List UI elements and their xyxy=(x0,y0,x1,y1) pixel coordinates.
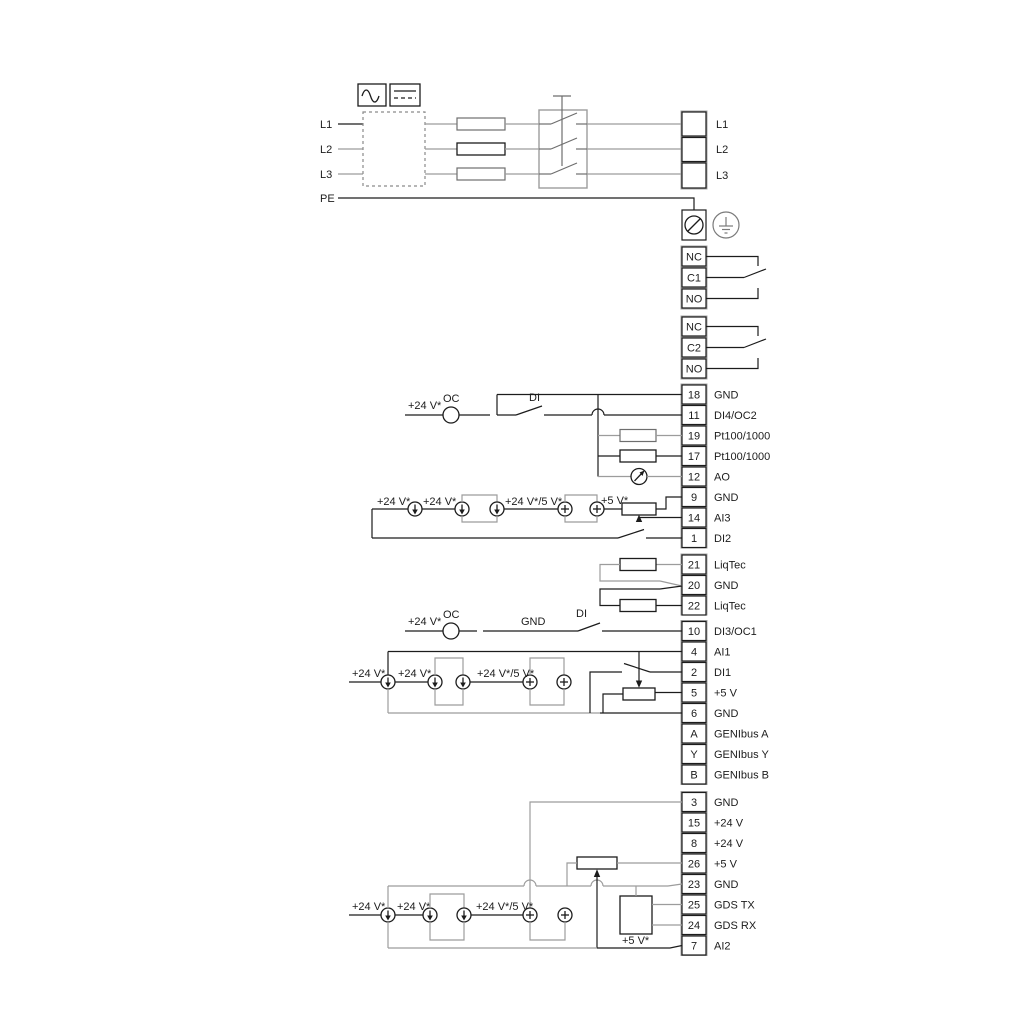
plus24v-5v-label: +24 V*/5 V* xyxy=(505,496,563,508)
wire-bridge xyxy=(430,922,464,940)
wire-bridge xyxy=(430,894,464,908)
wire xyxy=(567,863,577,886)
earth-ground-icon xyxy=(713,212,739,238)
mains-switch xyxy=(539,96,587,188)
pt100-resistor-icon xyxy=(620,430,656,442)
terminal-number: C2 xyxy=(687,343,701,355)
diagram-svg: L1 L2 L3 PE xyxy=(0,0,1024,1024)
terminal-number: A xyxy=(690,729,698,741)
terminal-label: GND xyxy=(714,580,739,592)
wiper-arrow-up xyxy=(594,869,600,877)
current-source-icon xyxy=(428,675,442,689)
terminal-cell-l1 xyxy=(682,112,706,136)
terminal-number: 1 xyxy=(691,533,697,545)
fuse-icon xyxy=(457,168,505,180)
liqtec-resistor-icon xyxy=(620,600,656,612)
terminal-label: GND xyxy=(714,879,739,891)
relay2-section: NC C2 NO xyxy=(681,316,767,380)
oc-label: OC xyxy=(443,609,460,621)
current-source-icon xyxy=(490,502,504,516)
wire-bridge xyxy=(462,516,497,522)
terminal-number: 4 xyxy=(691,647,697,659)
terminal-number: 10 xyxy=(688,626,700,638)
terminal-label: GDS RX xyxy=(714,920,757,932)
fuse-icon xyxy=(457,143,505,155)
mains-filter-box xyxy=(363,112,425,186)
terminal-number: NC xyxy=(686,322,702,334)
liqtec-sensor-wiring xyxy=(600,559,682,612)
wire xyxy=(660,581,682,586)
plus24v-label: +24 V* xyxy=(408,616,442,628)
liqtec-resistor-icon xyxy=(620,559,656,571)
voltage-source-icon xyxy=(558,502,572,516)
ai3-wiring: +24 V* +24 V* +24 V*/5 V* +5 V* xyxy=(372,495,682,538)
terminal-number: 20 xyxy=(688,580,700,592)
terminal-label: GENIbus B xyxy=(714,770,769,782)
current-source-icon xyxy=(381,908,395,922)
plus5v-label: +5 V* xyxy=(601,495,629,507)
relay-switch-blade xyxy=(744,339,766,348)
gnd-label: GND xyxy=(521,616,546,628)
terminal-number: 24 xyxy=(688,920,700,932)
terminal-number: 15 xyxy=(688,818,700,830)
terminal-label: GENIbus Y xyxy=(714,749,769,761)
oc-label: OC xyxy=(443,393,460,405)
terminal-label: DI2 xyxy=(714,533,731,545)
terminal-cell-l2 xyxy=(682,138,706,162)
terminal-number: 22 xyxy=(688,601,700,613)
wire-bridge xyxy=(530,922,565,940)
plus24v-5v-label: +24 V*/5 V* xyxy=(477,668,535,680)
terminal-label: AI1 xyxy=(714,647,731,659)
mains-input-label: L3 xyxy=(320,169,332,181)
plus24v-5v-label: +24 V*/5 V* xyxy=(476,901,534,913)
terminal-number: NO xyxy=(686,364,703,376)
plus24v-label: +24 V* xyxy=(377,496,411,508)
digital-input-switch-icon xyxy=(578,623,600,631)
liqtec-terminals: 21 20 22 LiqTec GND LiqTec xyxy=(600,554,746,616)
wiper-arrow-up xyxy=(636,515,642,522)
terminal-label: DI3/OC1 xyxy=(714,626,757,638)
io-group3-terminals: 3 15 8 26 23 25 24 7 GND +24 V +24 V +5 … xyxy=(681,791,757,956)
terminal-label: L3 xyxy=(716,170,728,182)
relay1-section: NC C1 NO xyxy=(681,246,767,310)
ai1-wiring: +24 V* +24 V* +24 V*/5 V* xyxy=(349,652,682,714)
relay1-contact xyxy=(706,257,766,299)
open-collector-icon xyxy=(443,407,459,423)
terminal-number: 26 xyxy=(688,859,700,871)
relay-nc-wire xyxy=(706,327,758,337)
terminal-cell-l3 xyxy=(682,163,706,188)
relay-no-wire xyxy=(706,288,758,299)
terminal-label: AI2 xyxy=(714,941,731,953)
mains-power-section: L1 L2 L3 PE xyxy=(320,84,739,240)
terminal-label: DI1 xyxy=(714,667,731,679)
plus24v-label: +24 V* xyxy=(352,901,386,913)
terminal-number: Y xyxy=(690,749,698,761)
plus24v-label: +24 V* xyxy=(397,901,431,913)
fuse-icon xyxy=(457,118,505,130)
terminal-label: GND xyxy=(714,390,739,402)
gds-sensor-box xyxy=(620,896,652,934)
wire-bridge xyxy=(435,689,463,705)
relay-no-wire xyxy=(706,358,758,369)
terminal-number: 19 xyxy=(688,431,700,443)
switch-contact xyxy=(551,138,577,149)
terminal-number: 23 xyxy=(688,879,700,891)
terminal-number: 25 xyxy=(688,900,700,912)
voltage-source-icon xyxy=(557,675,571,689)
terminal-label: GND xyxy=(714,708,739,720)
terminal-number: 14 xyxy=(688,513,700,525)
terminal-label: Pt100/1000 xyxy=(714,431,770,443)
relay2-contact xyxy=(706,327,766,369)
terminal-label: GDS TX xyxy=(714,900,755,912)
current-source-icon xyxy=(455,502,469,516)
terminal-number: NO xyxy=(686,294,703,306)
wire xyxy=(668,884,682,886)
terminal-number: 8 xyxy=(691,838,697,850)
terminal-number: B xyxy=(690,770,697,782)
terminal-number: 18 xyxy=(688,390,700,402)
switch-contact xyxy=(551,113,577,124)
terminal-number: 3 xyxy=(691,797,697,809)
potentiometer-icon xyxy=(623,688,655,700)
plus5v-label: +5 V* xyxy=(622,935,650,947)
di4-oc2-wiring: +24 V* OC DI xyxy=(405,392,682,477)
terminal-label: AI3 xyxy=(714,513,731,525)
terminal-number: 21 xyxy=(688,560,700,572)
potentiometer-icon xyxy=(577,857,617,869)
wiper-arrow-down xyxy=(636,681,642,688)
terminal-label: LiqTec xyxy=(714,601,746,613)
terminal-label: GND xyxy=(714,797,739,809)
open-collector-icon xyxy=(443,623,459,639)
mains-input-label: L2 xyxy=(320,144,332,156)
dc-symbol-icon xyxy=(390,84,420,106)
relay-nc-wire xyxy=(706,257,758,267)
terminal-label: GND xyxy=(714,492,739,504)
terminal-number: C1 xyxy=(687,273,701,285)
wire-bridge xyxy=(530,689,564,705)
relay-switch-blade xyxy=(744,269,766,278)
wire xyxy=(600,565,660,582)
terminal-label: +24 V xyxy=(714,818,744,830)
current-source-icon xyxy=(456,675,470,689)
mains-input-label: PE xyxy=(320,193,335,205)
plus24v-label: +24 V* xyxy=(408,400,442,412)
terminal-label: L2 xyxy=(716,144,728,156)
terminal-label: GENIbus A xyxy=(714,729,769,741)
current-source-icon xyxy=(408,502,422,516)
voltage-source-icon xyxy=(558,908,572,922)
wire-bridge xyxy=(462,495,497,502)
terminal-number: 5 xyxy=(691,688,697,700)
terminal-label: LiqTec xyxy=(714,560,746,572)
terminal-label: Pt100/1000 xyxy=(714,451,770,463)
switch-contact xyxy=(551,163,577,174)
terminal-number: 6 xyxy=(691,708,697,720)
terminal-number: 11 xyxy=(688,410,699,422)
terminal-number: 9 xyxy=(691,492,697,504)
current-source-icon xyxy=(381,675,395,689)
wire-bridge xyxy=(435,658,463,675)
terminal-label: DI4/OC2 xyxy=(714,410,757,422)
terminal-number: NC xyxy=(686,252,702,264)
io-group1-terminals: 18 11 19 17 12 9 14 1 GND DI4/OC2 Pt100/… xyxy=(681,384,771,549)
terminal-number: 12 xyxy=(688,472,700,484)
wire xyxy=(603,694,623,713)
plus24v-label: +24 V* xyxy=(423,496,457,508)
wire xyxy=(590,672,622,713)
wire xyxy=(656,497,682,509)
mains-input-label: L1 xyxy=(320,119,332,131)
terminal-label: AO xyxy=(714,472,730,484)
di-label: DI xyxy=(529,392,540,404)
terminal-number: 7 xyxy=(691,941,697,953)
io-group2-terminals: 10 4 2 5 6 A Y B DI3/OC1 AI1 DI1 +5 V GN… xyxy=(681,620,770,785)
terminal-label: +5 V xyxy=(714,859,738,871)
digital-input-switch-icon xyxy=(618,530,644,539)
di-label: DI xyxy=(576,608,587,620)
wiring-diagram: L1 L2 L3 PE xyxy=(0,0,1024,1024)
terminal-label: L1 xyxy=(716,119,728,131)
digital-input-switch-icon xyxy=(516,406,542,415)
ai2-gds-wiring: +5 V* +24 V* +24 V* +24 V*/5 V* xyxy=(349,802,682,948)
wire-bridge xyxy=(530,658,564,675)
terminal-label: +5 V xyxy=(714,688,738,700)
di3-oc1-wiring: +24 V* OC GND DI xyxy=(405,608,682,639)
wire-bridge xyxy=(565,516,597,522)
terminal-number: 17 xyxy=(688,451,700,463)
wire xyxy=(600,589,660,606)
plus24v-label: +24 V* xyxy=(352,668,386,680)
current-source-icon xyxy=(457,908,471,922)
wire xyxy=(660,586,682,589)
wire xyxy=(530,802,682,908)
pe-wire xyxy=(338,198,694,211)
digital-input-switch-icon xyxy=(624,664,650,673)
pt100-ao-wiring xyxy=(598,430,682,485)
plus24v-label: +24 V* xyxy=(398,668,432,680)
terminal-label: +24 V xyxy=(714,838,744,850)
terminal-number: 2 xyxy=(691,667,697,679)
wire-bridge xyxy=(565,495,597,502)
pt100-resistor-icon xyxy=(620,450,656,462)
